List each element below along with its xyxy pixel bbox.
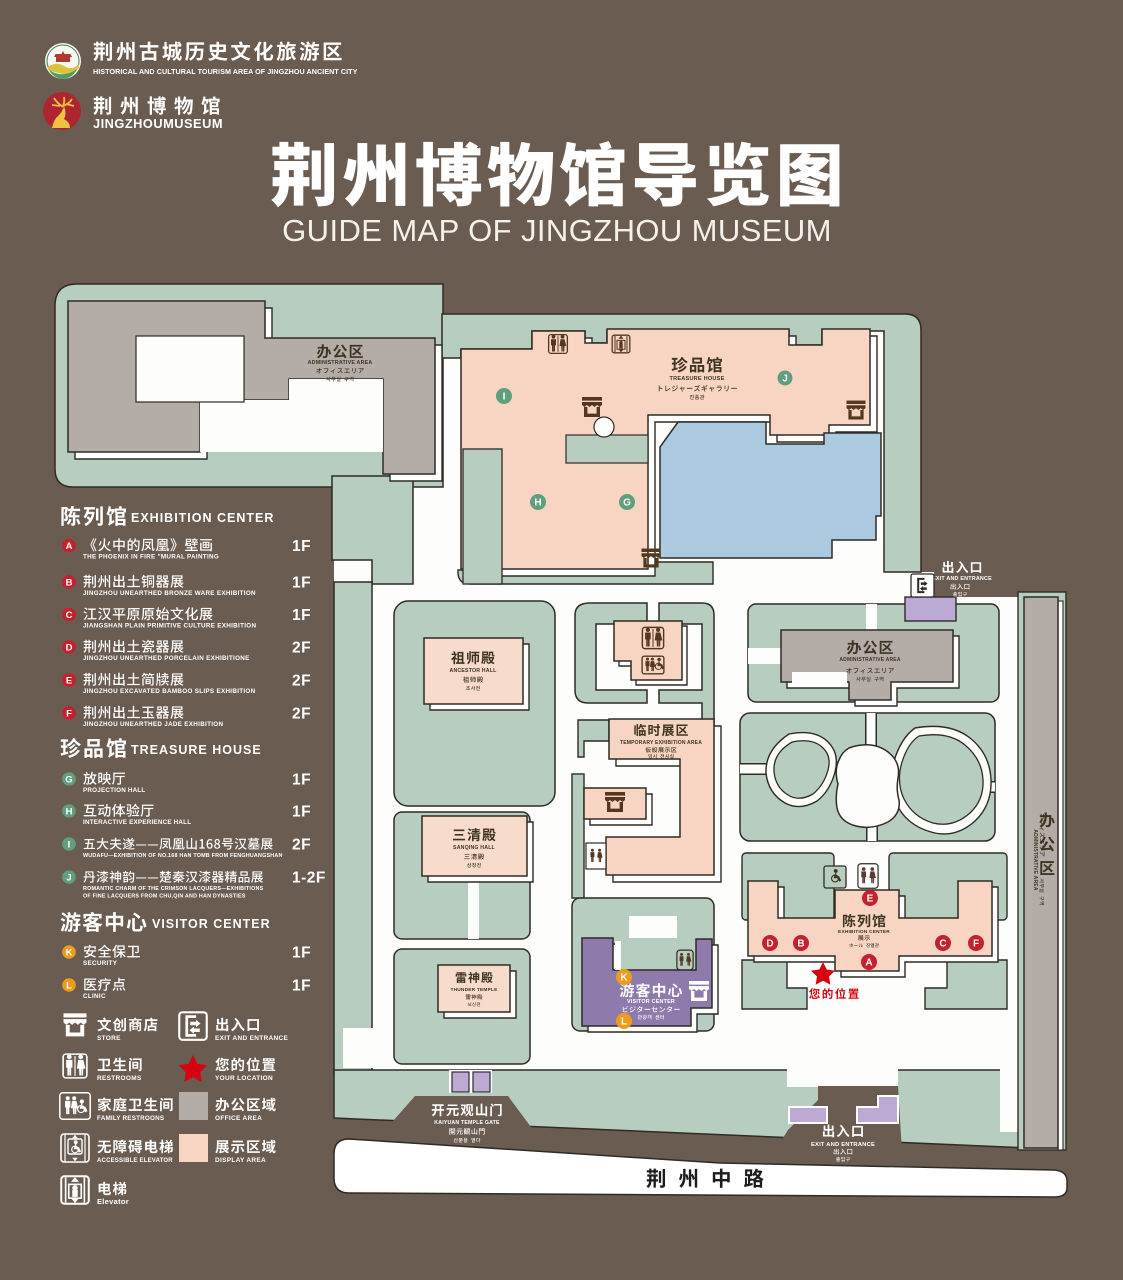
- svg-text:A: A: [66, 541, 73, 552]
- svg-text:2F: 2F: [292, 640, 311, 657]
- svg-text:EXIT AND ENTRANCE: EXIT AND ENTRANCE: [215, 1035, 288, 1042]
- svg-text:JINGZHOU UNEARTHED BRONZE WARE: JINGZHOU UNEARTHED BRONZE WARE EXHIBITIO…: [83, 590, 256, 597]
- svg-text:ANCESTOR HALL: ANCESTOR HALL: [450, 668, 498, 674]
- svg-text:I: I: [68, 839, 71, 850]
- svg-text:I: I: [503, 392, 506, 403]
- svg-text:KAIYUAN TEMPLE GATE: KAIYUAN TEMPLE GATE: [434, 1120, 500, 1126]
- svg-text:D: D: [66, 642, 73, 653]
- svg-text:2F: 2F: [292, 706, 311, 723]
- svg-text:YOUR LOCATION: YOUR LOCATION: [215, 1075, 273, 1082]
- svg-text:Elevator: Elevator: [97, 1197, 129, 1206]
- svg-text:ROMANTIC CHARM OF THE CRIMSON: ROMANTIC CHARM OF THE CRIMSON LACQUERS—E…: [83, 886, 264, 892]
- svg-text:JINGZHOU UNEARTHED PORCELAIN E: JINGZHOU UNEARTHED PORCELAIN EXHIBITIONE: [83, 655, 250, 662]
- svg-text:1F: 1F: [292, 945, 311, 962]
- svg-text:ADMINISTRATIVE AREA: ADMINISTRATIVE AREA: [308, 360, 373, 366]
- svg-text:INTERACTIVE EXPERIENCE HALL: INTERACTIVE EXPERIENCE HALL: [83, 819, 191, 826]
- svg-text:TREASURE HOUSE: TREASURE HOUSE: [131, 743, 262, 757]
- svg-text:CLINIC: CLINIC: [83, 993, 106, 1000]
- svg-text:GUIDE MAP OF JINGZHOU MUSEUM: GUIDE MAP OF JINGZHOU MUSEUM: [282, 213, 832, 248]
- svg-text:EXHIBITION CENTER: EXHIBITION CENTER: [131, 511, 274, 525]
- svg-text:ACCESSIBLE ELEVATOR: ACCESSIBLE ELEVATOR: [97, 1158, 173, 1164]
- svg-text:STORE: STORE: [97, 1035, 121, 1042]
- svg-text:F: F: [973, 939, 979, 950]
- svg-text:C: C: [939, 939, 946, 950]
- svg-text:2F: 2F: [292, 673, 311, 690]
- svg-text:JINGZHOU UNEARTHED JADE EXHIBI: JINGZHOU UNEARTHED JADE EXHIBITION: [83, 721, 223, 728]
- svg-text:HISTORICAL AND CULTURAL TOURIS: HISTORICAL AND CULTURAL TOURISM AREA OF …: [93, 67, 358, 76]
- svg-text:WUDAFU—EXHIBITION OF NO.168 HA: WUDAFU—EXHIBITION OF NO.168 HAN TOMB FRO…: [83, 853, 283, 859]
- svg-text:1F: 1F: [292, 772, 311, 789]
- svg-text:EXIT AND ENTRANCE: EXIT AND ENTRANCE: [932, 576, 992, 582]
- svg-text:E: E: [867, 894, 874, 905]
- svg-text:H: H: [534, 498, 541, 509]
- svg-text:TEMPORARY EXHIBITION AREA: TEMPORARY EXHIBITION AREA: [620, 740, 702, 746]
- svg-text:J: J: [66, 872, 71, 883]
- svg-text:ADMINISTRATIVE AREA: ADMINISTRATIVE AREA: [839, 657, 900, 663]
- svg-text:OFFICE AREA: OFFICE AREA: [215, 1115, 262, 1122]
- svg-text:G: G: [65, 774, 72, 785]
- svg-text:THUNDER TEMPLE: THUNDER TEMPLE: [450, 987, 498, 993]
- svg-text:JINGZHOU EXCAVATED BAMBOO SLIP: JINGZHOU EXCAVATED BAMBOO SLIPS EXHIBITI…: [83, 688, 256, 695]
- svg-text:L: L: [621, 1017, 627, 1028]
- svg-text:DISPLAY AREA: DISPLAY AREA: [215, 1157, 266, 1164]
- svg-text:1F: 1F: [292, 607, 311, 624]
- svg-text:D: D: [766, 939, 773, 950]
- svg-text:1F: 1F: [292, 804, 311, 821]
- svg-text:C: C: [66, 610, 73, 621]
- svg-text:TREASURE HOUSE: TREASURE HOUSE: [669, 376, 724, 382]
- svg-text:RESTROOMS: RESTROOMS: [97, 1075, 142, 1082]
- svg-text:J: J: [782, 374, 788, 385]
- svg-text:A: A: [865, 958, 872, 969]
- svg-text:VISITOR CENTER: VISITOR CENTER: [152, 917, 271, 931]
- svg-text:JIANGSHAN PLAIN PRIMITIVE CULT: JIANGSHAN PLAIN PRIMITIVE CULTURE EXHIBI…: [83, 623, 256, 630]
- svg-text:SANQING HALL: SANQING HALL: [453, 845, 496, 851]
- svg-text:1F: 1F: [292, 538, 311, 555]
- svg-text:L: L: [66, 980, 72, 991]
- svg-text:K: K: [620, 973, 628, 984]
- svg-text:H: H: [66, 806, 73, 817]
- svg-text:THE PHOENIX IN FIRE "MURAL PAI: THE PHOENIX IN FIRE "MURAL PAINTING: [83, 554, 219, 561]
- svg-text:ADMINISTRATIVE AREA: ADMINISTRATIVE AREA: [1032, 829, 1038, 890]
- svg-text:JINGZHOUMUSEUM: JINGZHOUMUSEUM: [93, 116, 223, 131]
- svg-text:FAMILY RESTROONS: FAMILY RESTROONS: [97, 1115, 164, 1122]
- svg-text:1F: 1F: [292, 575, 311, 592]
- svg-text:1-2F: 1-2F: [292, 870, 326, 887]
- svg-text:B: B: [66, 577, 73, 588]
- svg-text:G: G: [623, 498, 631, 509]
- svg-text:1F: 1F: [292, 978, 311, 995]
- svg-text:PROJECTION HALL: PROJECTION HALL: [83, 787, 145, 794]
- svg-text:VISITOR CENTER: VISITOR CENTER: [627, 999, 675, 1005]
- svg-text:B: B: [797, 939, 804, 950]
- svg-text:E: E: [66, 675, 72, 686]
- svg-text:EXHIBITION CENTER: EXHIBITION CENTER: [838, 929, 890, 935]
- svg-text:EXIT AND ENTRANCE: EXIT AND ENTRANCE: [811, 1142, 875, 1148]
- svg-text:K: K: [66, 947, 73, 958]
- svg-text:F: F: [66, 708, 72, 719]
- svg-text:SECURITY: SECURITY: [83, 960, 118, 967]
- svg-text:2F: 2F: [292, 837, 311, 854]
- svg-text:OF FINE LACQUERS FROM CHU,QIN: OF FINE LACQUERS FROM CHU,QIN AND HAN DY…: [83, 894, 246, 900]
